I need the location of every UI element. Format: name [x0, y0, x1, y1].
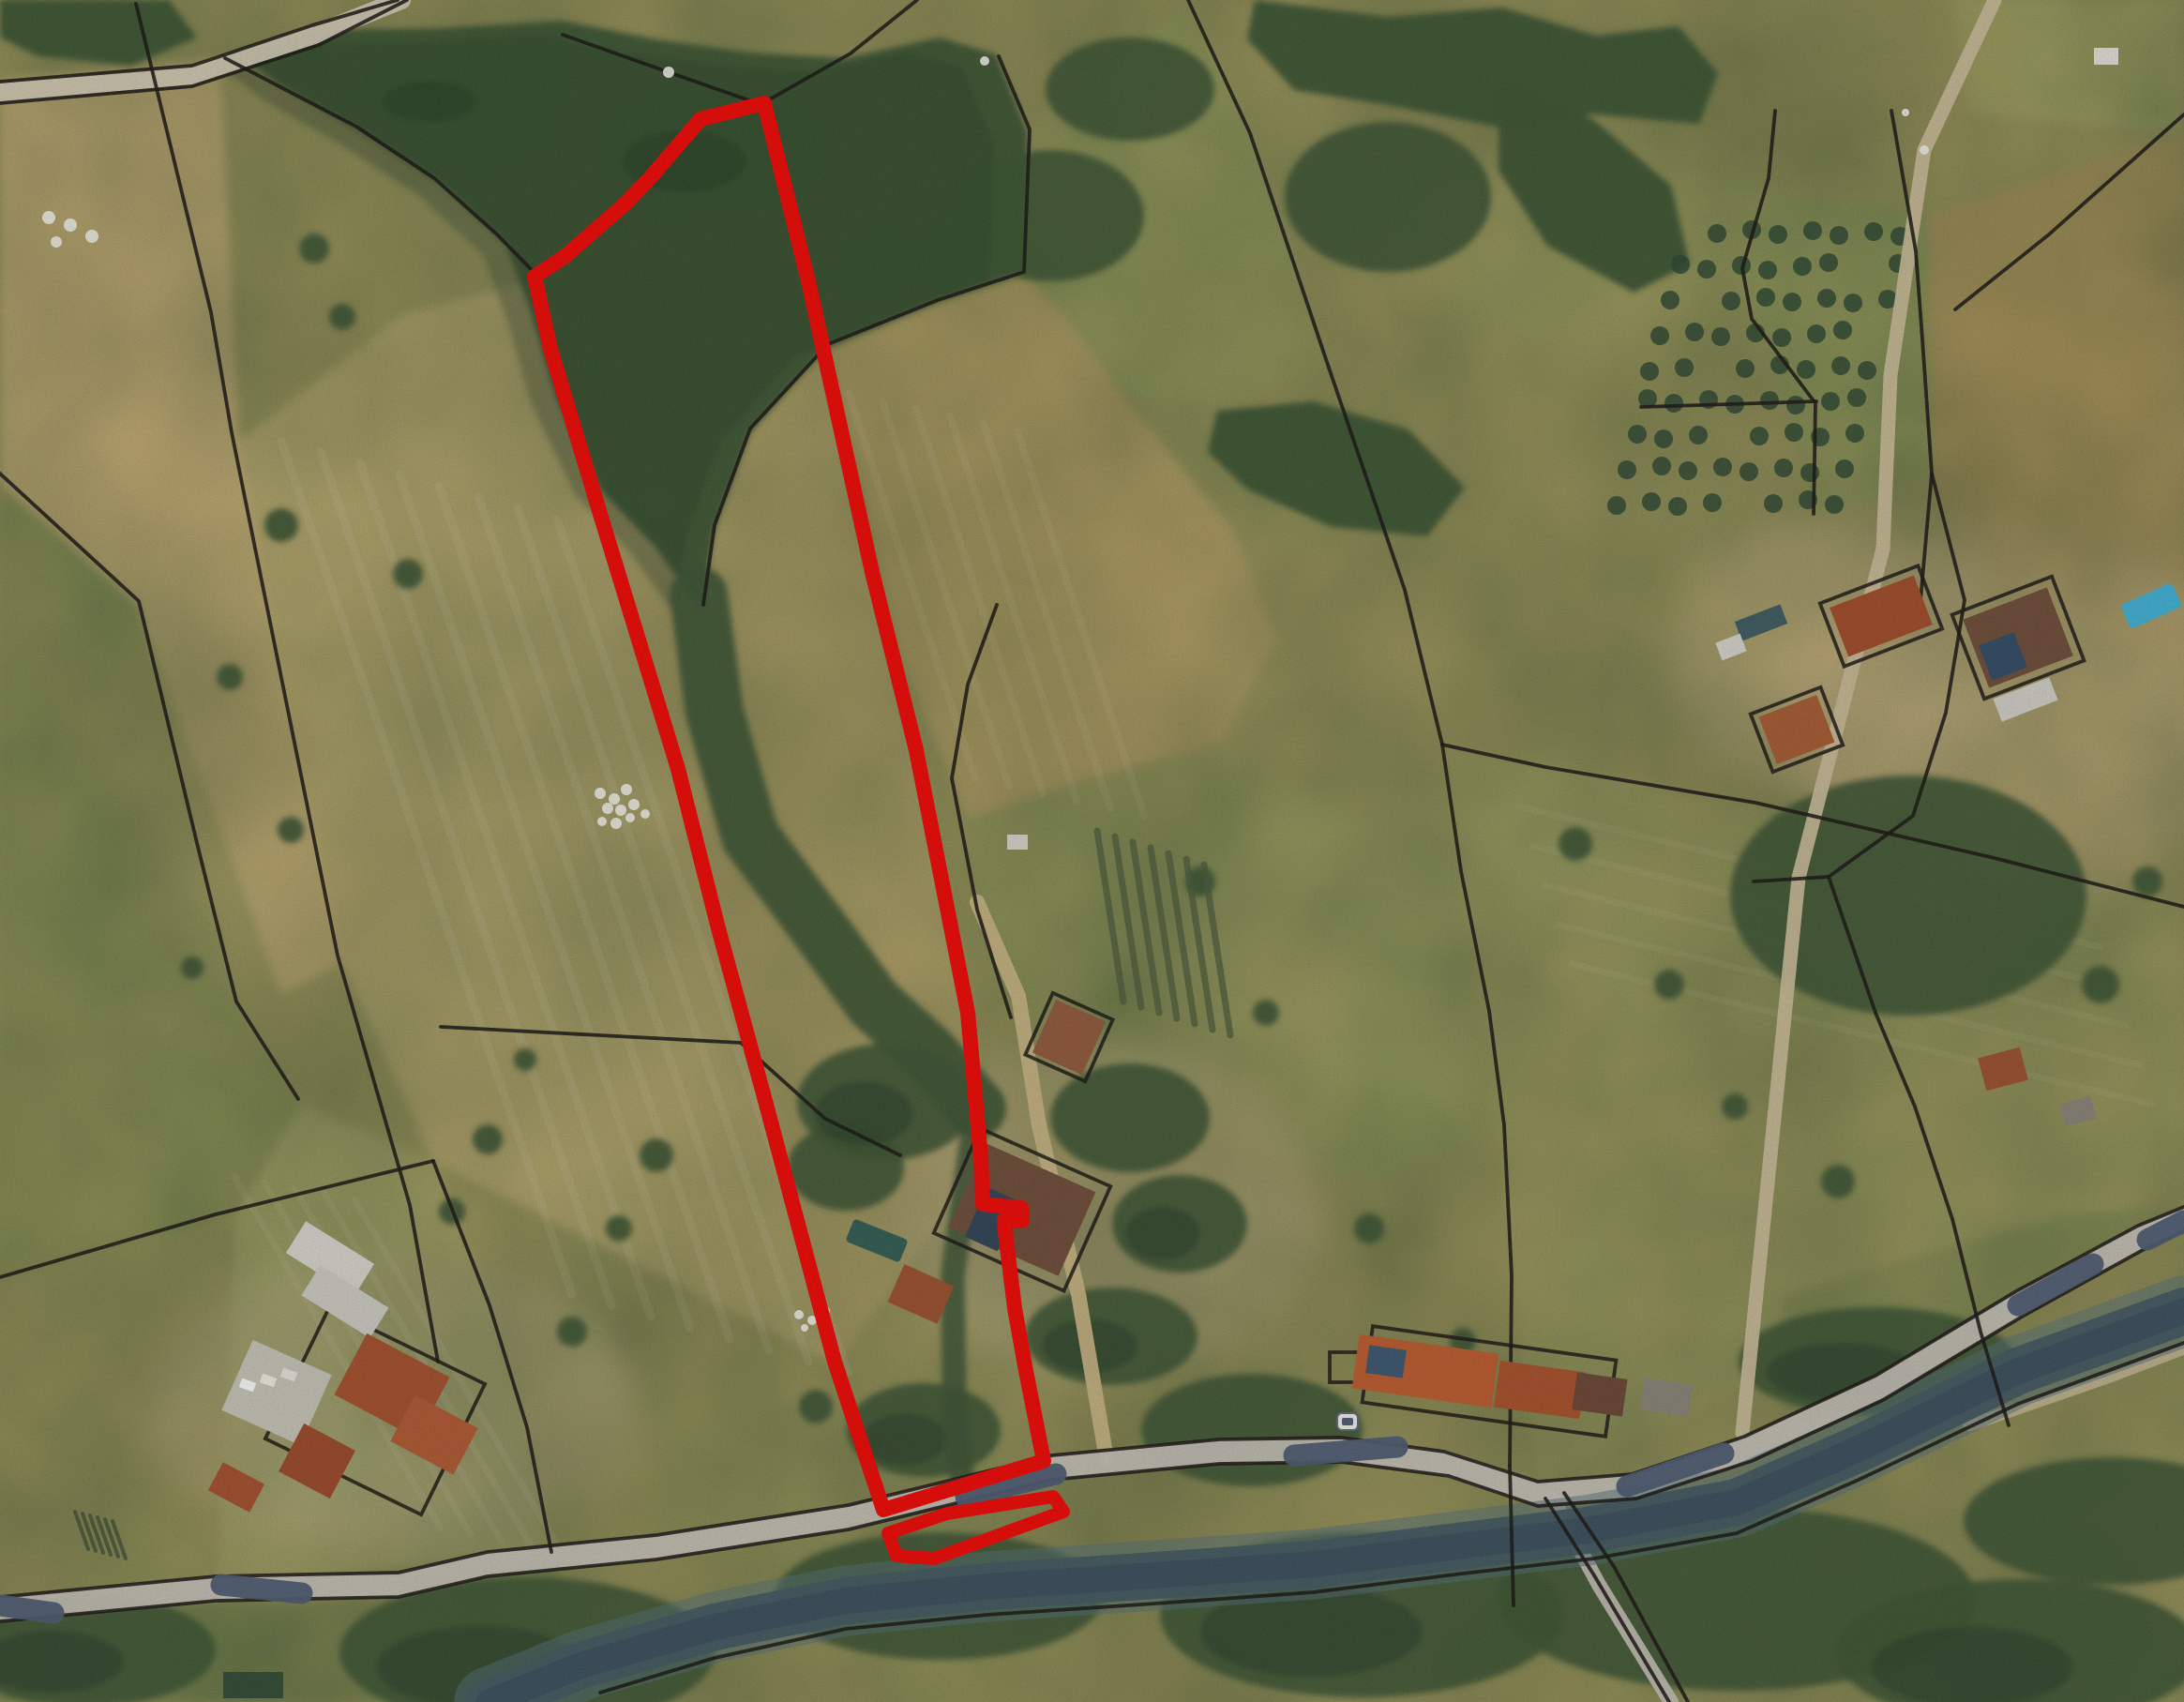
building-roof — [1572, 1372, 1627, 1416]
orchard-tree — [1679, 461, 1697, 480]
orchard-tree — [1703, 493, 1722, 512]
orchard-tree — [1764, 494, 1783, 513]
orchard-tree — [1797, 360, 1815, 379]
orchard-tree — [1833, 321, 1852, 339]
orchard-tree — [1807, 324, 1826, 343]
hay-bale-dot — [595, 788, 606, 799]
tree-grove — [1285, 122, 1491, 272]
orchard-tree — [1758, 261, 1777, 279]
orchard-tree — [1713, 458, 1732, 476]
orchard-tree — [1774, 459, 1793, 477]
orchard-tree — [1708, 224, 1726, 243]
orchard-tree — [1675, 358, 1694, 377]
hay-bale-dot — [625, 813, 635, 822]
hay-bale-dot — [980, 56, 989, 66]
hay-bale-dot — [597, 817, 607, 826]
tree-icon — [1722, 1093, 1748, 1120]
orchard-tree — [1664, 394, 1683, 413]
orchard-tree — [1642, 492, 1661, 511]
tree-icon — [264, 508, 298, 542]
orchard-tree — [1685, 323, 1704, 341]
hay-bale-dot — [663, 67, 674, 78]
aerial-cadastral-map[interactable] — [0, 0, 2184, 1702]
tree-icon — [557, 1317, 587, 1347]
tree-icon — [299, 233, 329, 264]
orchard-tree — [1661, 291, 1679, 309]
hay-bale-dot — [794, 1310, 804, 1319]
orchard-tree — [1847, 388, 1866, 407]
tree-icon — [1253, 1000, 1279, 1026]
building-roof — [223, 1672, 283, 1698]
orchard-tree — [1689, 426, 1708, 444]
orchard-tree — [1793, 257, 1812, 276]
orchard-tree — [1722, 292, 1740, 310]
orchard-tree — [1830, 226, 1848, 245]
orchard-tree — [1844, 294, 1862, 312]
orchard-tree — [1785, 423, 1803, 442]
orchard-tree — [1652, 457, 1671, 475]
tree-shadow — [1125, 1207, 1199, 1260]
orchard-tree — [1845, 424, 1864, 443]
tree-icon — [606, 1215, 632, 1242]
orchard-tree — [1750, 427, 1769, 445]
hay-bale-dot — [85, 230, 98, 243]
orchard-tree — [1825, 495, 1844, 514]
hay-bale-dot — [42, 211, 55, 224]
tree-icon — [393, 559, 423, 589]
hay-bale-dot — [628, 799, 640, 810]
building-roof — [2094, 48, 2118, 65]
orchard-tree — [1756, 288, 1775, 307]
orchard-tree — [1607, 496, 1626, 515]
road-segment-mark — [0, 1605, 53, 1613]
hay-bale-dot — [640, 809, 650, 819]
map-poi-icon[interactable] — [1337, 1413, 1358, 1430]
tree-icon — [1559, 827, 1592, 861]
tree-icon — [1654, 970, 1684, 1000]
orchard-tree — [1831, 356, 1850, 375]
orchard-tree — [1817, 289, 1836, 308]
orchard-tree — [1697, 260, 1716, 279]
orchard-tree — [1786, 396, 1805, 414]
orchard-tree — [1769, 225, 1787, 244]
orchard-tree — [1736, 359, 1755, 378]
orchard-tree — [1800, 463, 1819, 482]
orchard-tree — [1858, 361, 1876, 380]
tree-grove — [1050, 1063, 1210, 1172]
building-roof — [1640, 1378, 1693, 1417]
tree-icon — [473, 1124, 503, 1154]
poi-icon-glyph — [1342, 1418, 1353, 1425]
tree-icon — [278, 817, 304, 843]
orchard-tree — [1640, 362, 1659, 381]
tree-icon — [1821, 1165, 1855, 1198]
tree-icon — [2132, 866, 2162, 896]
orchard-tree — [1783, 293, 1801, 311]
orchard-tree — [1654, 429, 1673, 448]
orchard-tree — [1650, 326, 1669, 345]
tree-icon — [640, 1138, 673, 1172]
road-segment-mark — [221, 1585, 302, 1593]
building-roof — [1007, 835, 1028, 850]
hay-bale-dot — [602, 803, 613, 814]
tree-icon — [329, 304, 355, 330]
tree-icon — [1354, 1213, 1384, 1243]
orchard-tree — [1711, 327, 1730, 346]
hay-bale-dot — [621, 784, 632, 795]
tree-shadow — [862, 1414, 946, 1466]
hay-bale-dot — [51, 236, 62, 248]
hay-bale-dot — [609, 793, 620, 805]
hay-bale-dot — [1920, 145, 1929, 155]
satellite-map-canvas[interactable] — [0, 0, 2184, 1702]
orchard-tree — [1864, 222, 1883, 241]
tree-icon — [2082, 966, 2119, 1003]
hay-bale-dot — [615, 805, 626, 816]
tree-grove — [1046, 38, 1214, 141]
orchard-tree — [1760, 391, 1779, 410]
orchard-tree — [1772, 328, 1791, 347]
tree-icon — [217, 664, 243, 690]
tree-icon — [799, 1390, 833, 1423]
hay-bale-dot — [801, 1324, 808, 1332]
orchard-tree — [1819, 253, 1838, 272]
orchard-tree — [1668, 497, 1687, 516]
tree-icon — [514, 1048, 536, 1071]
hay-bale-dot — [64, 218, 77, 232]
orchard-tree — [1740, 462, 1758, 481]
orchard-tree — [1671, 255, 1690, 274]
orchard-tree — [1821, 392, 1840, 411]
building-roof — [1365, 1345, 1407, 1378]
hay-bale-dot — [610, 818, 622, 829]
orchard-tree — [1618, 460, 1636, 479]
road-segment-mark — [1294, 1447, 1397, 1455]
hay-bale-dot — [1902, 109, 1909, 116]
orchard-tree — [1803, 221, 1822, 240]
tree-icon — [181, 956, 203, 979]
orchard-tree — [1628, 425, 1647, 444]
orchard-tree — [1835, 459, 1854, 478]
